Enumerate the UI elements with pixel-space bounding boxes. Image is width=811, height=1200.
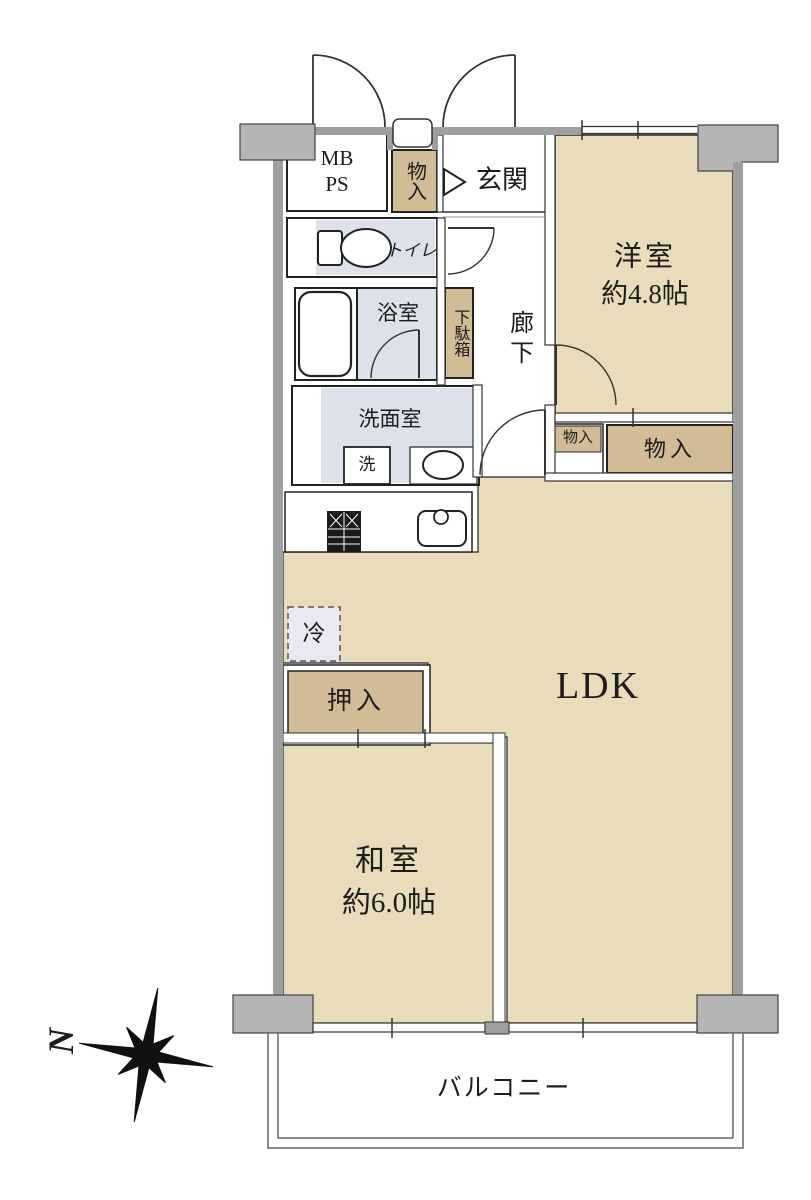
compass-rose — [67, 976, 225, 1134]
bathroom-label: 浴室 — [377, 302, 419, 324]
toilet-door — [448, 228, 494, 274]
bathtub — [299, 292, 351, 376]
corridor-ldk-door — [480, 410, 545, 475]
western-room-label: 洋室 — [614, 242, 676, 271]
storage-entrance-label: 物入 — [404, 161, 425, 201]
toilet-bowl — [341, 229, 391, 267]
wall-right — [733, 162, 743, 997]
refrigerator-label: 冷 — [303, 622, 326, 646]
shoe-cabinet-label: 下駄箱 — [451, 309, 468, 357]
corridor-label: 廊下 — [505, 310, 530, 370]
top-wall-mid — [432, 127, 582, 135]
wall-left — [273, 156, 283, 997]
western-room-floor — [555, 135, 733, 415]
pillar-bottom-right — [697, 995, 778, 1033]
wash-basin — [423, 451, 463, 479]
entrance-recess-left — [387, 133, 393, 150]
kitchen-sink-icon — [418, 510, 466, 546]
window-center-stub — [485, 1022, 509, 1034]
entrance-door-sill — [393, 119, 432, 147]
washroom-label: 洗面室 — [359, 408, 422, 430]
japanese-room-size-label: 約6.0帖 — [342, 888, 436, 918]
fusuma-washitsu-top — [283, 733, 497, 743]
wall-corridor-western-lower — [545, 405, 555, 477]
wall-toilet-corridor — [437, 218, 445, 385]
entrance-double-doors — [313, 55, 515, 127]
sliding-wall-western-storage — [555, 413, 733, 422]
entrance-recess-right — [432, 133, 438, 150]
stove-icon — [327, 511, 361, 552]
pillar-bottom-left — [233, 995, 313, 1033]
wall-corridor-western-upper — [545, 133, 555, 345]
western-room-size-label: 約4.8帖 — [601, 280, 689, 308]
entrance-label: 玄関 — [476, 166, 528, 193]
closet-label: 押入 — [327, 689, 385, 715]
storage-large-label: 物入 — [644, 437, 696, 460]
japanese-room-label: 和室 — [355, 845, 423, 877]
floor-plan: MB PS 物入 玄関 トイレ 浴室 下駄箱 廊下 洋室 約4.8帖 洗面室 洗… — [0, 0, 811, 1200]
pillar-top-left — [240, 124, 315, 160]
wall-below-storage — [545, 473, 733, 481]
balcony-label: バルコニー — [437, 1076, 572, 1102]
top-wall-left — [313, 127, 393, 135]
divider-washitsu-ldk — [493, 733, 505, 1025]
mbps-label-ps: PS — [325, 173, 348, 195]
washing-machine-label: 洗 — [359, 456, 376, 474]
compass-north-label: N — [43, 1028, 81, 1054]
mbps-label-mb: MB — [321, 147, 354, 169]
entrance-marker-triangle — [444, 169, 465, 195]
ldk-label: LDK — [556, 667, 640, 707]
toilet-tank — [318, 231, 342, 265]
storage-small-label: 物入 — [563, 431, 593, 447]
japanese-room-floor — [283, 743, 495, 1023]
toilet-label: トイレ — [386, 242, 437, 260]
